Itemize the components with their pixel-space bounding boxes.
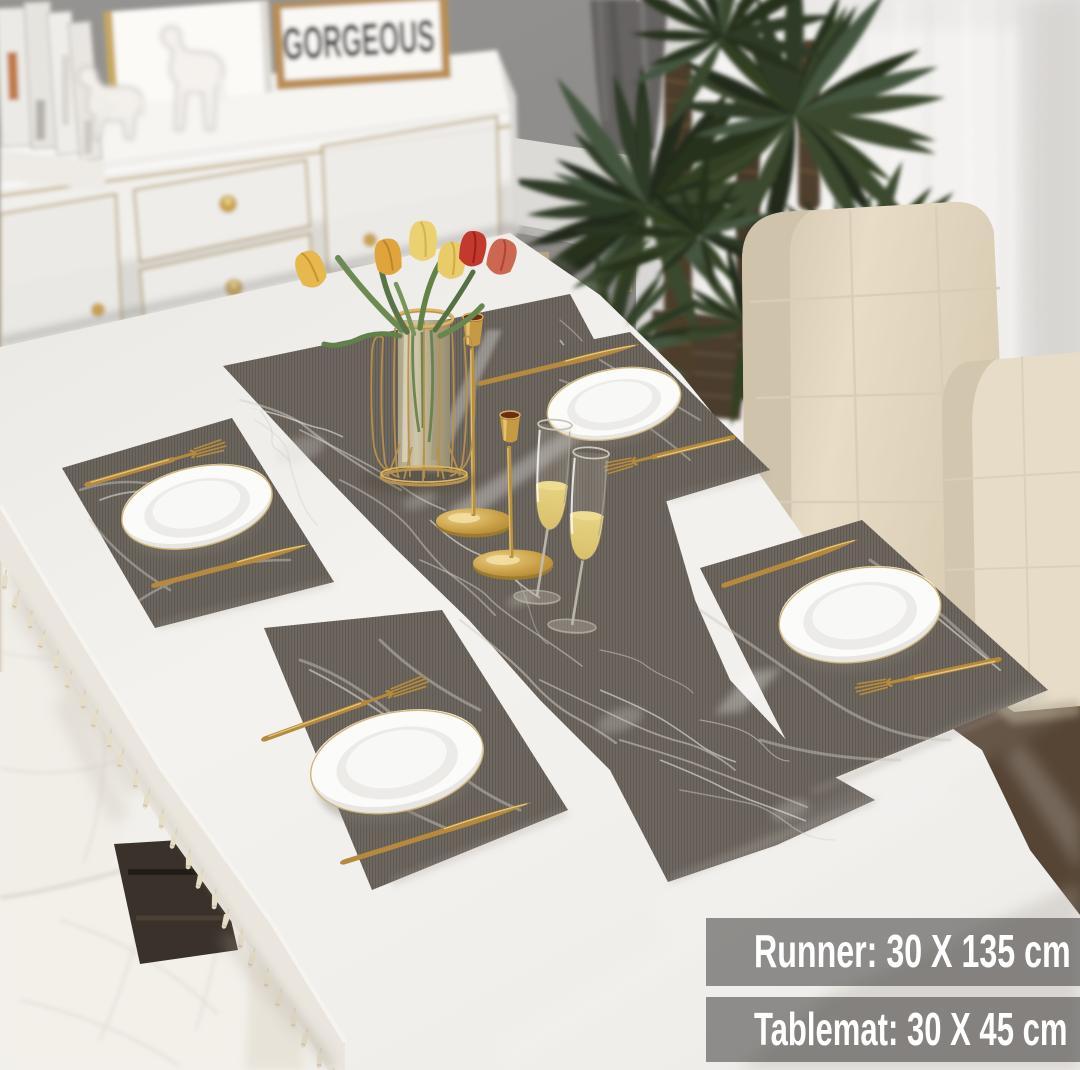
svg-text:GORGEOUS: GORGEOUS — [281, 10, 436, 70]
svg-text:Runner: 30 X 135 cm: Runner: 30 X 135 cm — [754, 926, 1071, 977]
svg-text:Tablemat: 30 X 45 cm: Tablemat: 30 X 45 cm — [754, 1004, 1067, 1056]
